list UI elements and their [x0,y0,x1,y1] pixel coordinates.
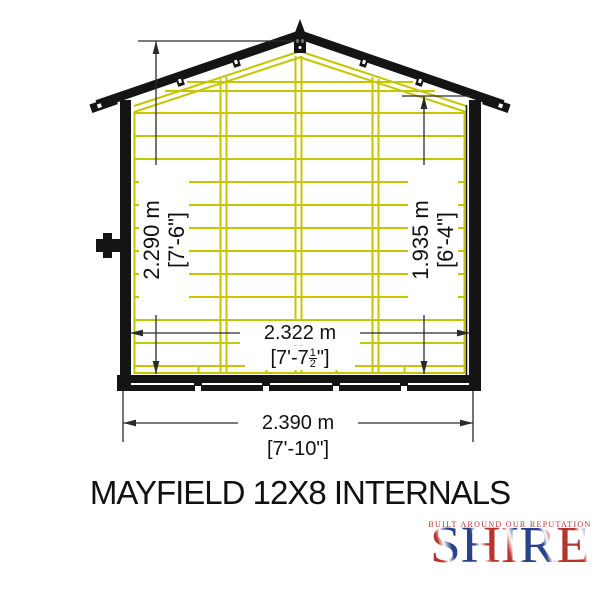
roof-finial [293,19,308,53]
dim-ridge-height-label: 2.290 m [7'-6"] [139,165,189,315]
fraction-half: 12 [309,348,317,369]
shire-logo: SHIRE BUILT AROUND OUR REPUTATION [427,519,593,529]
right-wall-post [469,100,481,386]
dim-overall-width-imperial: [7'-10"] [243,437,353,461]
floor-base [117,375,481,391]
dim-eaves-height-metric: 1.935 m [408,165,433,315]
shire-logo-wordmark: SHIRE [427,519,593,567]
page: 2.290 m [7'-6"] 1.935 m [6'-4"] 2.322 m … [0,0,600,600]
dim-ridge-height-metric: 2.290 m [139,165,164,315]
dim-overall-width-metric: 2.390 m [238,411,358,435]
dim-ridge-height-imperial: [7'-6"] [164,165,189,315]
page-title: MAYFIELD 12X8 INTERNALS [50,474,550,512]
roof-right-slope [299,35,503,105]
logo-brand-text: SHIRE [430,519,590,567]
dim-internal-width-imperial: [7'-712"] [245,346,355,370]
imperial-prefix: [7'-7 [270,347,308,369]
dim-internal-width-metric: 2.322 m [240,321,360,345]
imperial-suffix: "] [317,347,330,369]
dim-eaves-height-label: 1.935 m [6'-4"] [408,165,458,315]
door-handle [96,233,122,258]
roof-left-slope [97,35,301,105]
dim-eaves-height-imperial: [6'-4"] [433,165,458,315]
